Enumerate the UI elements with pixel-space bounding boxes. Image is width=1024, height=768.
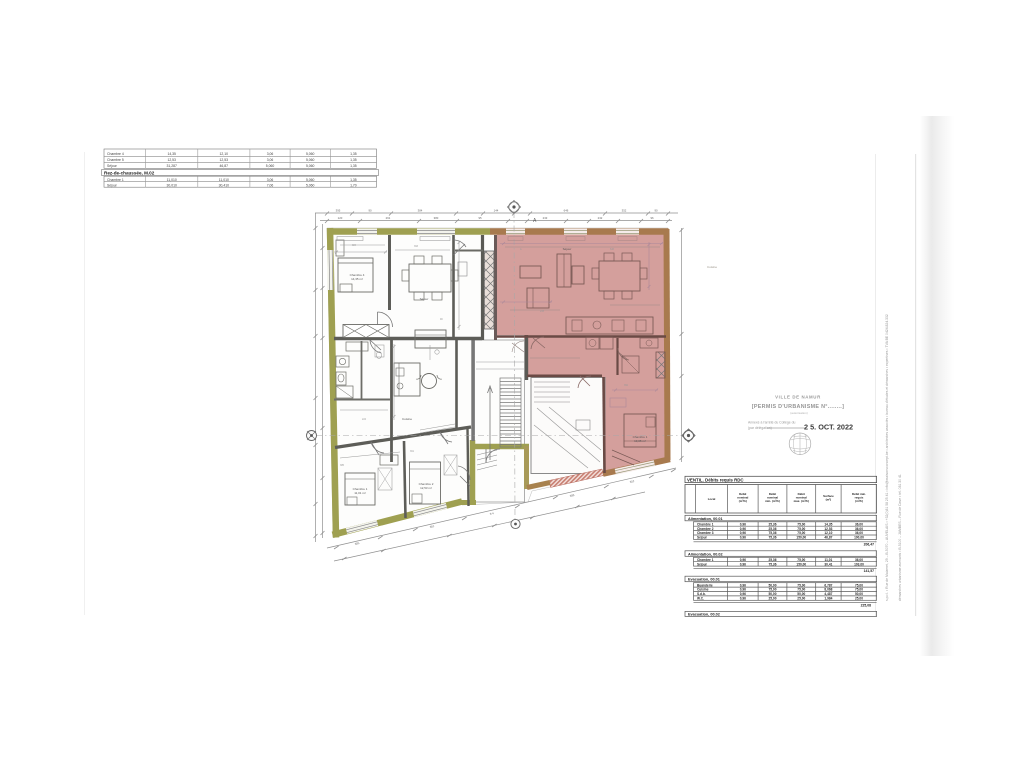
svg-text:0,96: 0,96	[740, 592, 746, 596]
svg-text:0,96: 0,96	[740, 588, 746, 592]
svg-text:31,287: 31,287	[167, 164, 177, 168]
svg-text:75,36: 75,36	[769, 562, 777, 566]
svg-text:Alimentation, 00.02: Alimentation, 00.02	[688, 552, 723, 556]
svg-text:1,35: 1,35	[350, 164, 357, 168]
svg-text:Local: Local	[708, 497, 716, 501]
svg-text:232: 232	[598, 216, 603, 220]
svg-text:11,01: 11,01	[824, 558, 832, 562]
svg-text:36,00: 36,00	[855, 531, 863, 535]
svg-text:646: 646	[564, 209, 569, 213]
svg-text:(m²): (m²)	[826, 497, 831, 501]
svg-text:Séjour: Séjour	[107, 183, 118, 187]
svg-text:46,87: 46,87	[824, 536, 832, 540]
svg-text:Séjour: Séjour	[107, 164, 118, 168]
svg-text:361: 361	[410, 450, 415, 453]
svg-text:5,060: 5,060	[306, 158, 315, 162]
svg-text:12,53: 12,53	[824, 527, 832, 531]
svg-text:5,060: 5,060	[306, 183, 315, 187]
svg-text:S.d.b.: S.d.b.	[697, 592, 706, 596]
svg-text:75,00: 75,00	[797, 527, 805, 531]
svg-text:0,96: 0,96	[740, 536, 746, 540]
svg-text:démarches urbanisme avenants: démarches urbanisme avenants • B-5100 – …	[898, 474, 902, 601]
svg-text:VENTIL. Débits requis RDC: VENTIL. Débits requis RDC	[687, 477, 744, 482]
svg-text:233: 233	[540, 310, 545, 313]
svg-text:646: 646	[610, 248, 615, 251]
svg-text:384: 384	[352, 244, 357, 247]
svg-text:75,00: 75,00	[855, 583, 863, 587]
svg-text:90: 90	[368, 209, 372, 213]
svg-text:(autorisation): (autorisation)	[790, 411, 808, 415]
svg-text:Chambre 1: Chambre 1	[697, 558, 714, 562]
svg-text:36,00: 36,00	[855, 527, 863, 531]
svg-text:0,96: 0,96	[740, 527, 746, 531]
svg-text:6,787: 6,787	[824, 583, 832, 587]
svg-text:385: 385	[340, 464, 345, 467]
svg-text:st: st	[500, 388, 502, 391]
svg-text:Chambre 1: Chambre 1	[697, 522, 714, 526]
svg-text:Séjour: Séjour	[563, 247, 572, 251]
svg-text:13,05 m²: 13,05 m²	[634, 439, 646, 443]
svg-text:1,984: 1,984	[824, 597, 832, 601]
svg-text:206,47: 206,47	[864, 543, 874, 547]
svg-text:120: 120	[338, 216, 343, 220]
svg-text:141,57: 141,57	[864, 569, 874, 573]
svg-text:0,96: 0,96	[740, 583, 746, 587]
svg-text:Cuisine: Cuisine	[707, 265, 717, 269]
svg-text:Chambre 4: Chambre 4	[107, 152, 124, 156]
svg-text:0,96: 0,96	[740, 522, 746, 526]
svg-text:30,410: 30,410	[219, 183, 229, 187]
svg-text:3,06: 3,06	[267, 178, 274, 182]
svg-text:25,36: 25,36	[769, 558, 777, 562]
svg-text:VILLE DE NAMUR: VILLE DE NAMUR	[775, 395, 821, 400]
svg-text:Annexé à l'arrêté du Collège d: Annexé à l'arrêté du Collège du	[748, 420, 796, 424]
svg-text:W.C.: W.C.	[697, 597, 704, 601]
svg-text:12,53: 12,53	[167, 158, 176, 162]
svg-text:0,96: 0,96	[740, 597, 746, 601]
svg-text:3,06: 3,06	[267, 158, 274, 162]
svg-text:30,41: 30,41	[824, 562, 832, 566]
svg-text:14,35 m²: 14,35 m²	[351, 277, 363, 281]
svg-text:36,00: 36,00	[855, 558, 863, 562]
svg-text:12,53: 12,53	[220, 158, 229, 162]
svg-text:46,87: 46,87	[220, 164, 229, 168]
svg-text:261: 261	[386, 216, 391, 220]
svg-text:36,00: 36,00	[855, 522, 863, 526]
svg-text:Séjour: Séjour	[697, 562, 708, 566]
svg-text:352: 352	[624, 384, 629, 387]
svg-text:8,068: 8,068	[824, 588, 832, 592]
svg-text:max. (m³/h): max. (m³/h)	[794, 499, 809, 503]
svg-text:14,35: 14,35	[824, 522, 832, 526]
svg-text:min. (m³/h): min. (m³/h)	[765, 499, 780, 503]
svg-text:11,010: 11,010	[219, 178, 229, 182]
svg-text:5,060: 5,060	[266, 164, 275, 168]
svg-text:5,060: 5,060	[306, 178, 315, 182]
svg-text:75,00: 75,00	[855, 588, 863, 592]
svg-text:Evacuation, 00.02: Evacuation, 00.02	[688, 613, 720, 617]
svg-text:5,060: 5,060	[306, 164, 315, 168]
svg-text:75,36: 75,36	[769, 531, 777, 535]
svg-text:Buanderie: Buanderie	[697, 583, 713, 587]
svg-text:25,00: 25,00	[797, 597, 805, 601]
svg-text:11,010: 11,010	[167, 178, 177, 182]
svg-text:Cuisine: Cuisine	[402, 417, 412, 421]
svg-text:95: 95	[478, 216, 482, 220]
svg-text:75,00: 75,00	[797, 522, 805, 526]
svg-text:7,06: 7,06	[267, 183, 274, 187]
svg-text:96: 96	[650, 216, 654, 220]
svg-text:5,060: 5,060	[306, 152, 315, 156]
svg-text:75,00: 75,00	[769, 588, 777, 592]
svg-text:Séjour: Séjour	[697, 536, 708, 540]
svg-text:1,35: 1,35	[350, 158, 357, 162]
svg-text:25,00: 25,00	[855, 597, 863, 601]
svg-text:2 5. OCT. 2022: 2 5. OCT. 2022	[804, 423, 853, 432]
svg-text:11,01 m²: 11,01 m²	[354, 491, 366, 495]
svg-text:30,010: 30,010	[167, 183, 177, 187]
svg-text:25,00: 25,00	[769, 597, 777, 601]
svg-text:384: 384	[418, 209, 423, 213]
svg-text:Chambre 2: Chambre 2	[697, 527, 714, 531]
svg-text:150,00: 150,00	[796, 562, 806, 566]
svg-text:0,96: 0,96	[740, 562, 746, 566]
svg-text:103,00: 103,00	[854, 562, 864, 566]
svg-text:395: 395	[336, 209, 341, 213]
svg-text:233: 233	[543, 216, 548, 220]
svg-text:1,70: 1,70	[350, 183, 357, 187]
svg-text:224: 224	[362, 418, 367, 421]
svg-text:50,00: 50,00	[855, 592, 863, 596]
svg-text:144: 144	[494, 209, 499, 213]
svg-text:75,00: 75,00	[797, 588, 805, 592]
svg-text:Chambre 3: Chambre 3	[697, 531, 714, 535]
svg-text:90: 90	[654, 209, 658, 213]
svg-text:Evacuation, 00.01: Evacuation, 00.01	[688, 578, 720, 582]
svg-text:Cuisine: Cuisine	[697, 588, 709, 592]
svg-text:50,00: 50,00	[769, 592, 777, 596]
svg-text:12,10: 12,10	[220, 152, 229, 156]
svg-text:25,36: 25,36	[769, 522, 777, 526]
svg-text:(m³/h): (m³/h)	[739, 499, 747, 503]
svg-text:75,36: 75,36	[769, 536, 777, 540]
svg-text:(m³/h): (m³/h)	[855, 499, 863, 503]
svg-text:75,00: 75,00	[797, 558, 805, 562]
svg-text:0,96: 0,96	[740, 558, 746, 562]
svg-text:150,00: 150,00	[796, 536, 806, 540]
svg-text:225,08: 225,08	[861, 603, 871, 607]
svg-text:12,53 m²: 12,53 m²	[420, 486, 432, 490]
svg-text:75,00: 75,00	[797, 583, 805, 587]
svg-text:352: 352	[622, 209, 627, 213]
svg-text:1,35: 1,35	[350, 152, 357, 156]
svg-text:1,35: 1,35	[350, 178, 357, 182]
svg-text:100,00: 100,00	[854, 536, 864, 540]
svg-text:s.p.r.l. • Rue de Maizeret,: s.p.r.l. • Rue de Maizeret, 29 – B-5070 …	[885, 314, 889, 601]
svg-text:4,487: 4,487	[824, 592, 832, 596]
svg-text:Chambre 1: Chambre 1	[107, 178, 124, 182]
svg-text:25,36: 25,36	[769, 527, 777, 531]
svg-text:Rez-de-chaussée, M.02: Rez-de-chaussée, M.02	[104, 170, 155, 175]
svg-text:50,00: 50,00	[797, 592, 805, 596]
svg-text:0,96: 0,96	[740, 531, 746, 535]
svg-text:Alimentation, 00.01: Alimentation, 00.01	[688, 517, 723, 521]
svg-text:[PERMIS D'URBANISME N°........: [PERMIS D'URBANISME N°........]	[752, 404, 844, 410]
svg-text:75,00: 75,00	[797, 531, 805, 535]
svg-text:Séjour: Séjour	[420, 297, 429, 301]
svg-text:12,10: 12,10	[824, 531, 832, 535]
svg-text:50,00: 50,00	[769, 583, 777, 587]
svg-text:380: 380	[434, 216, 439, 220]
svg-text:Chambre 5: Chambre 5	[107, 158, 124, 162]
svg-text:14,35: 14,35	[167, 152, 176, 156]
svg-text:393: 393	[414, 245, 419, 248]
svg-text:3,06: 3,06	[267, 152, 274, 156]
